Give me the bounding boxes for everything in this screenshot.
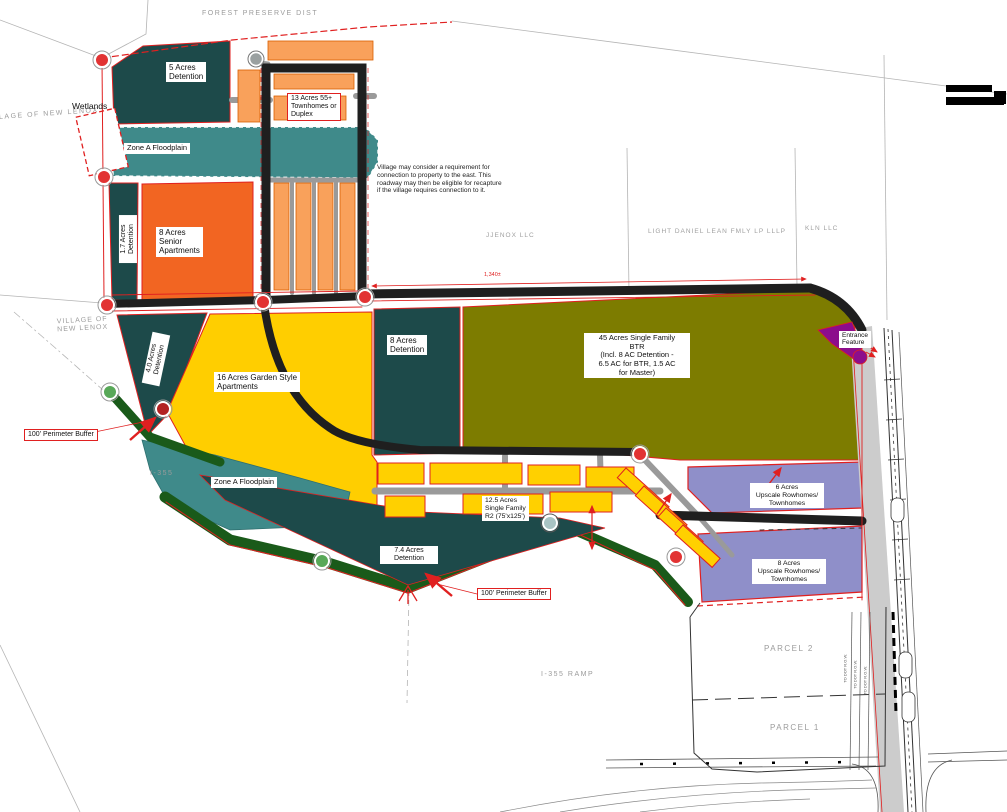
label-12-5-acres: 12.5 Acres Single Family R2 (75'x125') xyxy=(482,496,529,521)
parcel-8-acres-detention xyxy=(374,307,460,455)
label-parcel-1: PARCEL 1 xyxy=(770,723,820,732)
label-13-acres: 13 Acres 55+ Townhomes or Duplex xyxy=(287,93,341,121)
label-i355: I-355 xyxy=(150,470,173,478)
label-dim-row-1: TO DOT R.O.W. xyxy=(844,645,849,691)
label-6-acres-upscale: 6 Acres Upscale Rowhomes/ Townhomes xyxy=(750,483,824,508)
label-i355-ramp: I-355 RAMP xyxy=(541,671,594,679)
label-entrance-feature: Entrance Feature xyxy=(839,331,871,348)
label-16-acres-garden: 16 Acres Garden Style Apartments xyxy=(214,372,300,392)
label-5-acres-detention: 5 Acres Detention xyxy=(166,62,206,82)
label-jjenox-llc: JJENOX LLC xyxy=(486,232,535,239)
label-8-acres-upscale: 8 Acres Upscale Rowhomes/ Townhomes xyxy=(752,559,826,584)
intersection-lines xyxy=(500,751,1007,812)
label-village-note: Village may consider a requirement for c… xyxy=(377,164,502,195)
label-1-7-detention: 1.7 Acres Detention xyxy=(119,215,137,263)
label-7-4-detention: 7.4 Acres Detention xyxy=(380,546,438,564)
label-8-acres-senior: 8 Acres Senior Apartments xyxy=(156,227,203,257)
label-zone-a-floodplain-2: Zone A Floodplain xyxy=(211,477,277,488)
label-dim-1340: 1,340± xyxy=(484,272,501,278)
label-forest-preserve: FOREST PRESERVE DIST xyxy=(202,10,318,18)
label-kln-llc: KLN LLC xyxy=(805,225,838,232)
barcode-block xyxy=(946,85,1006,105)
label-dim-row-3: TO DOT R.O.W. xyxy=(864,657,869,703)
label-zone-a-floodplain-1: Zone A Floodplain xyxy=(124,143,190,154)
label-parcel-2: PARCEL 2 xyxy=(764,644,814,653)
label-45-acres-btr: 45 Acres Single Family BTR (Incl. 8 AC D… xyxy=(584,333,690,378)
site-plan: FOREST PRESERVE DIST VILLAGE OF NEW LENO… xyxy=(0,0,1007,812)
label-dim-row-2: TO DOT R.O.W. xyxy=(854,651,859,697)
label-village-left: VILLAGE OF NEW LENOX xyxy=(57,316,109,335)
label-light-daniel: LIGHT DANIEL LEAN FMLY LP LLLP xyxy=(648,228,786,235)
label-perimeter-buffer-2: 100' Perimeter Buffer xyxy=(477,588,551,600)
parcel-5-acres-detention xyxy=(112,41,230,124)
label-perimeter-buffer-1: 100' Perimeter Buffer xyxy=(24,429,98,441)
label-8-acres-detention: 8 Acres Detention xyxy=(387,335,427,355)
label-wetlands: Wetlands xyxy=(72,102,107,112)
